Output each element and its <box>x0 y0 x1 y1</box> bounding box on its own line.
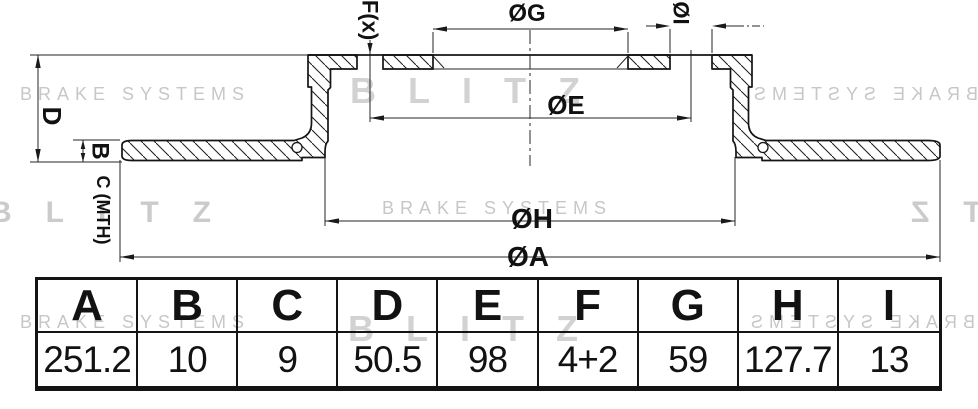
undercut-groove <box>292 143 302 153</box>
dim-label-a: ØA <box>507 241 549 272</box>
spec-header-cell: C <box>238 280 338 333</box>
hub-plate-segment <box>628 55 670 69</box>
spec-value-cell: 13 <box>839 333 939 386</box>
dim-label-d: D <box>37 107 67 126</box>
spec-value-cell: 4+2 <box>539 333 639 386</box>
cross-section-drawing: F(x) ØG ØI ØE ØH ØA D B C (MTH) <box>0 0 978 275</box>
spec-value-cell: 10 <box>138 333 238 386</box>
spec-value-cell: 251.2 <box>38 333 138 386</box>
dim-label-g: ØG <box>508 0 545 27</box>
brake-disc-spec-sheet: BRAKE SYSTEMS BLITZ BRAKE SYSTEMS BLITZ … <box>0 0 978 409</box>
dim-label-b: B <box>87 142 114 159</box>
spec-value-cell: 98 <box>438 333 538 386</box>
spec-table: A B C D E F G H I 251.2 10 9 50.5 98 4+2… <box>35 277 942 391</box>
spec-header-cell: G <box>639 280 739 333</box>
dim-label-h: ØH <box>511 203 553 234</box>
spec-header-cell: H <box>739 280 839 333</box>
spec-header-cell: F <box>539 280 639 333</box>
disc-section-right <box>712 55 940 161</box>
undercut-groove <box>758 143 768 153</box>
hub-plate-segment <box>383 55 433 69</box>
spec-value-cell: 59 <box>639 333 739 386</box>
dim-label-i: ØI <box>669 1 694 24</box>
spec-header-cell: I <box>839 280 939 333</box>
spec-header-cell: A <box>38 280 138 333</box>
spec-value-cell: 9 <box>238 333 338 386</box>
dim-label-fx: F(x) <box>358 0 383 40</box>
spec-value-cell: 50.5 <box>338 333 438 386</box>
spec-value-cell: 127.7 <box>739 333 839 386</box>
spec-header-cell: E <box>438 280 538 333</box>
spec-header-cell: D <box>338 280 438 333</box>
dim-label-c: C (MTH) <box>93 176 113 245</box>
dim-label-e: ØE <box>547 90 585 120</box>
dimension-labels: F(x) ØG ØI ØE ØH ØA D B C (MTH) <box>37 0 694 272</box>
disc-section-left <box>122 55 357 161</box>
spec-header-cell: B <box>138 280 238 333</box>
